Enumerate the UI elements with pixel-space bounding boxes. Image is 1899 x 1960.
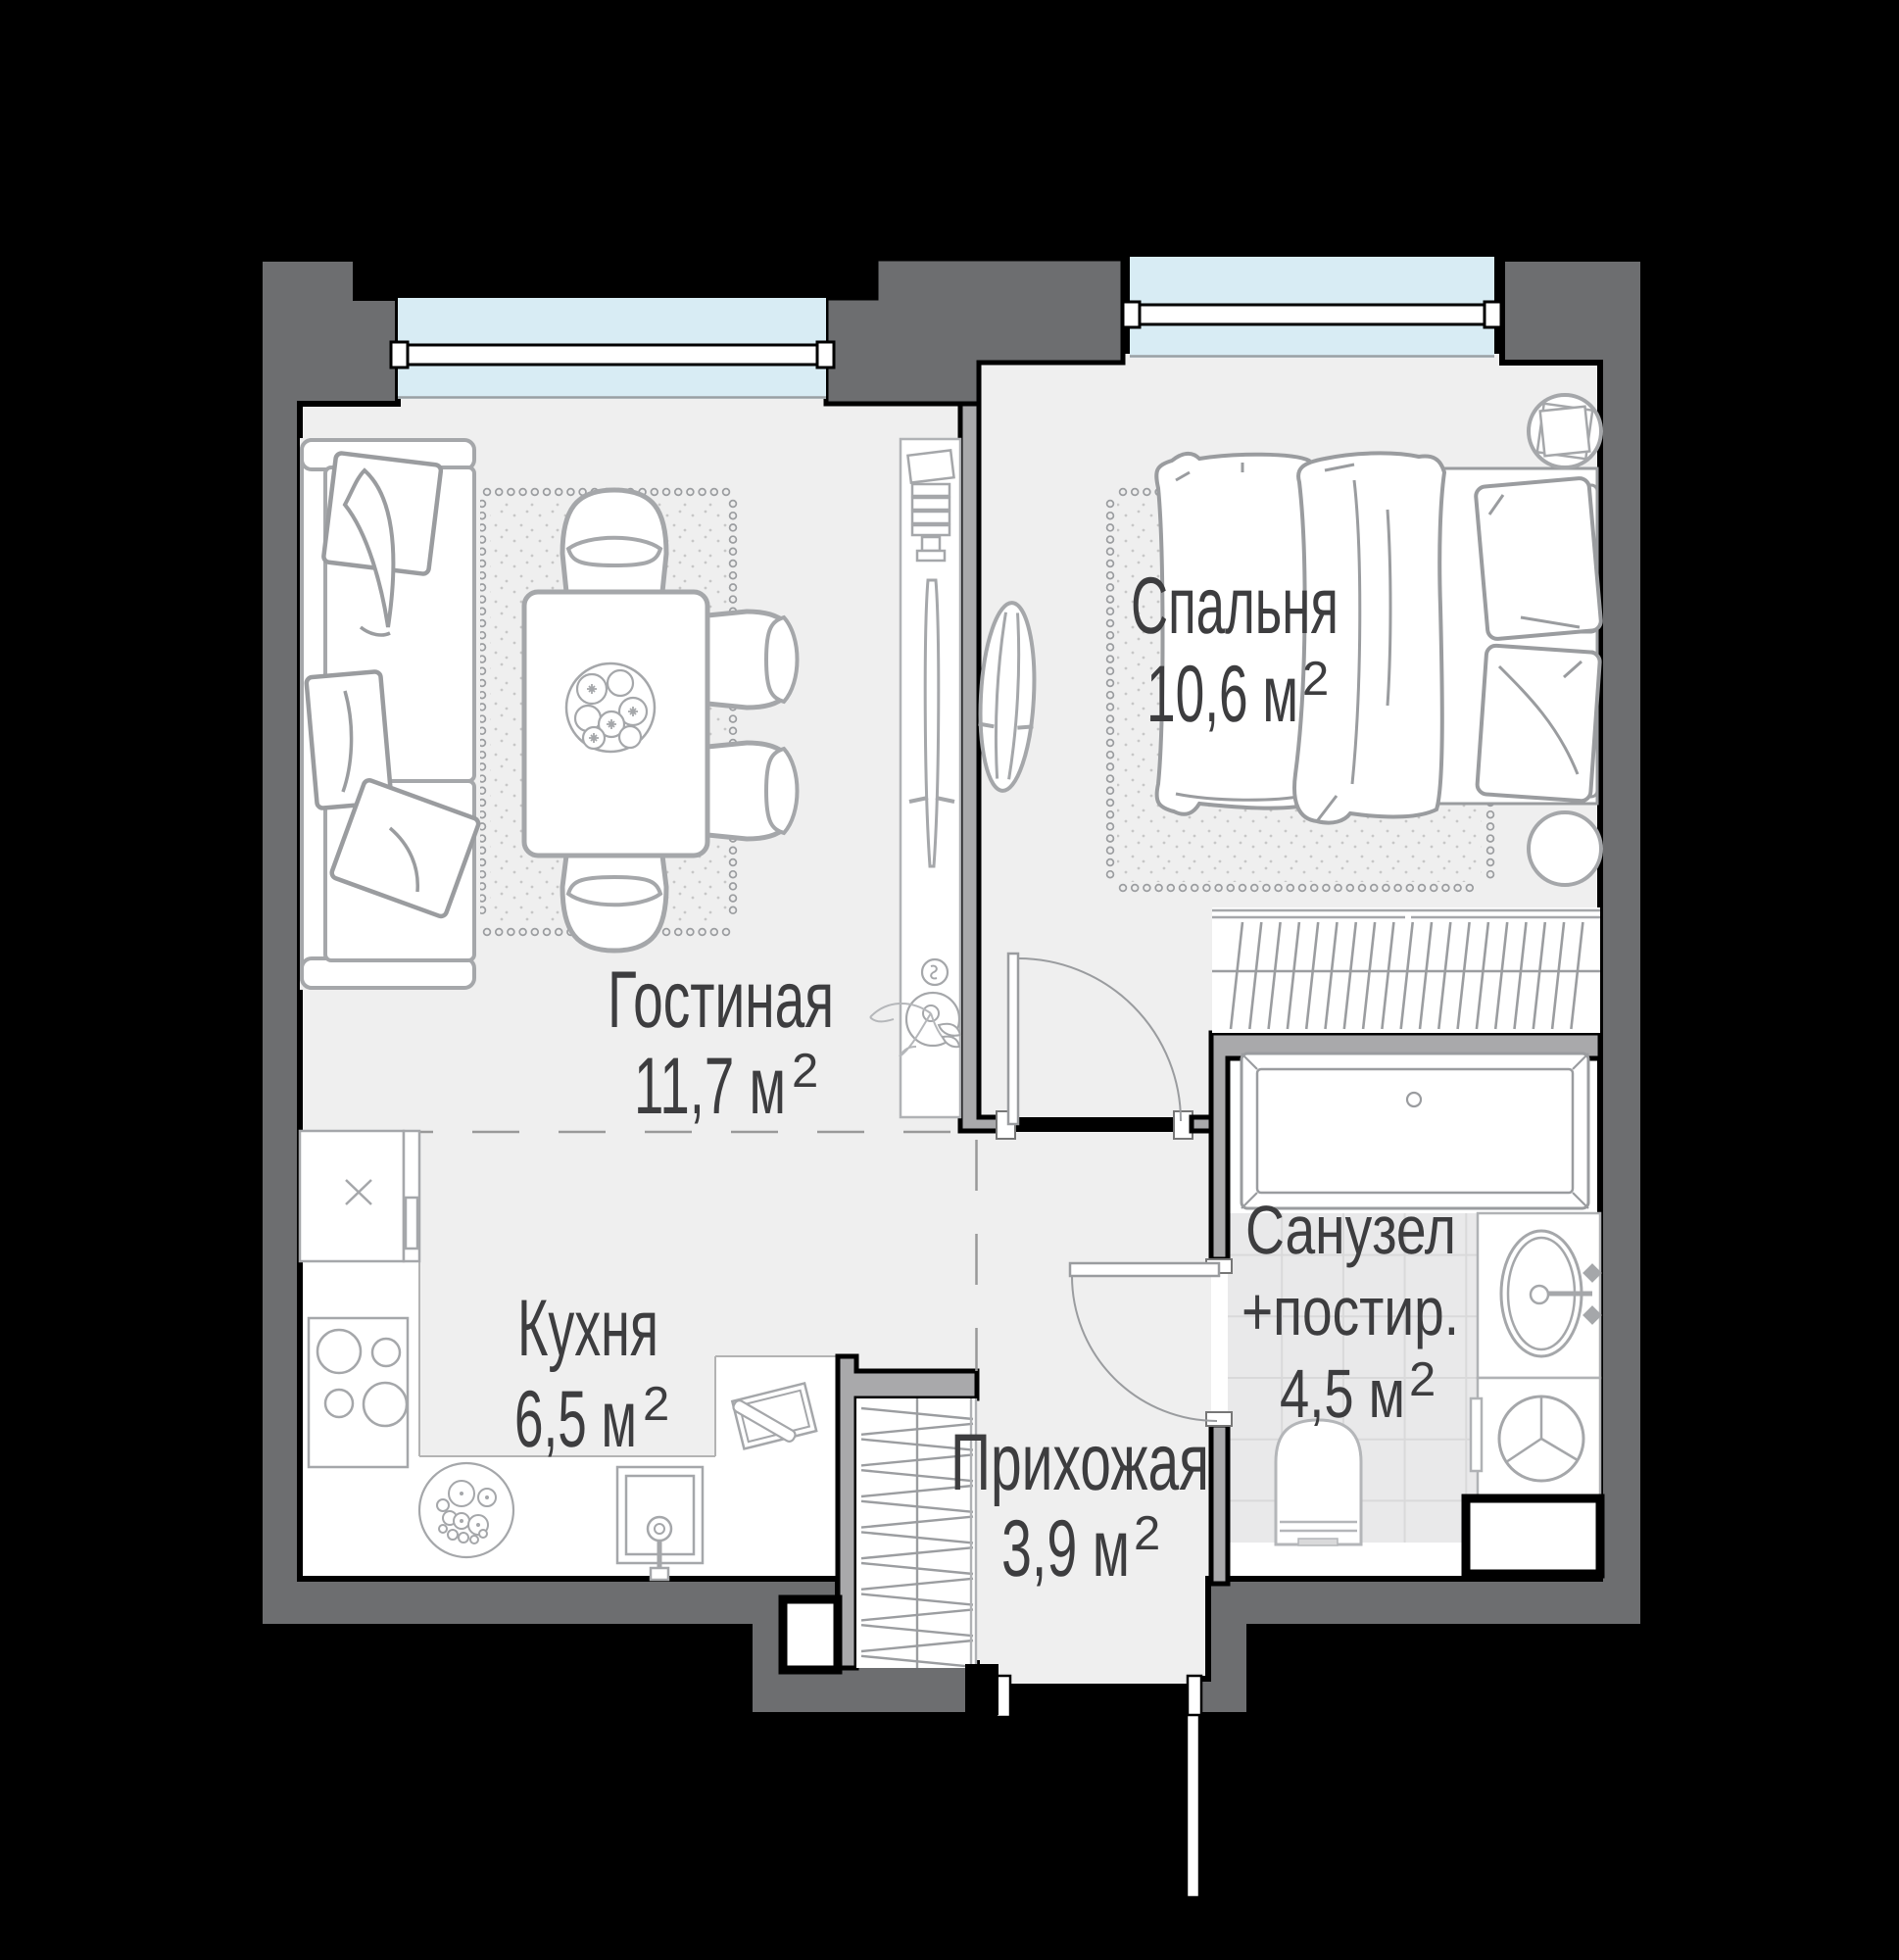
svg-text:6,5 м: 6,5 м bbox=[514, 1375, 637, 1464]
svg-text:2: 2 bbox=[792, 1045, 818, 1098]
svg-text:2: 2 bbox=[643, 1378, 669, 1431]
svg-text:10,6 м: 10,6 м bbox=[1146, 650, 1298, 739]
svg-text:Спальня: Спальня bbox=[1131, 562, 1339, 651]
svg-text:+постир.: +постир. bbox=[1242, 1273, 1459, 1349]
svg-text:3,9 м: 3,9 м bbox=[1001, 1504, 1130, 1593]
svg-text:Кухня: Кухня bbox=[517, 1284, 658, 1373]
svg-text:Гостиная: Гостиная bbox=[608, 955, 834, 1045]
svg-text:2: 2 bbox=[1302, 653, 1329, 706]
svg-text:Прихожая: Прихожая bbox=[950, 1418, 1209, 1507]
svg-text:2: 2 bbox=[1134, 1507, 1160, 1560]
svg-text:4,5 м: 4,5 м bbox=[1280, 1355, 1405, 1432]
svg-text:Санузел: Санузел bbox=[1245, 1192, 1456, 1268]
svg-text:11,7 м: 11,7 м bbox=[634, 1042, 786, 1131]
svg-text:2: 2 bbox=[1409, 1353, 1436, 1406]
